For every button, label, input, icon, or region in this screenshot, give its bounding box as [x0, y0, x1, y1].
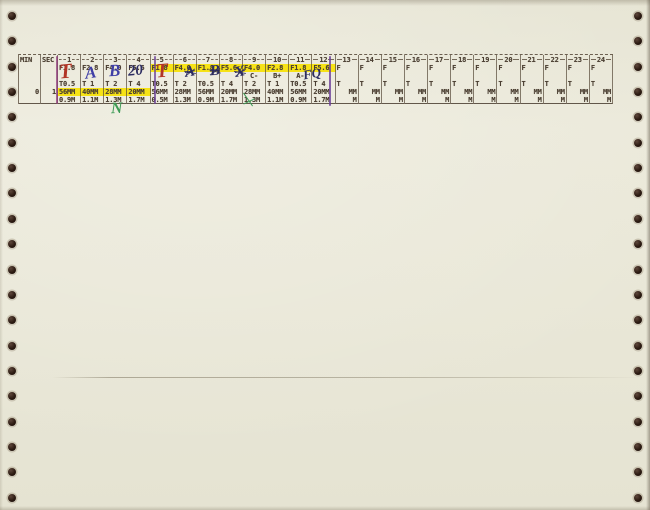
cell-m-2: 1.1M: [81, 96, 104, 104]
column-number: 20: [497, 55, 520, 64]
hw-letter-n: N: [111, 100, 123, 118]
min-blank-cell: [19, 72, 41, 80]
tractor-feed-hole: [634, 291, 642, 299]
tractor-feed-hole: [8, 291, 16, 299]
cell-time-20: T: [497, 80, 520, 88]
cell-mm-16: MM: [405, 88, 428, 96]
cell-m-4: 1.7M: [127, 96, 150, 104]
cell-fstop-19: F: [474, 64, 497, 72]
column-number: 14: [359, 55, 382, 64]
cell-grade-15: [382, 72, 405, 80]
tractor-feed-hole: [634, 164, 642, 172]
tractor-feed-hole: [8, 240, 16, 248]
min-blank-cell: [19, 64, 41, 72]
column-number: 21: [521, 55, 544, 64]
column-number-label: 6: [183, 56, 187, 64]
cell-mm-20: MM: [497, 88, 520, 96]
cell-grade-13: [336, 72, 359, 80]
cell-fstop-13: F: [336, 64, 359, 72]
column-number-label: 15: [389, 56, 397, 64]
tractor-feed-hole: [8, 113, 16, 121]
cell-fstop-16: F: [405, 64, 428, 72]
cell-m-13: M: [336, 96, 359, 104]
hw-grade-col5: T: [155, 60, 169, 84]
tractor-feed-hole: [634, 63, 642, 71]
cell-fstop-21: F: [521, 64, 544, 72]
min-blank-cell: [19, 80, 41, 88]
column-number-label: 23: [574, 56, 582, 64]
purple-marker-line-col12: [329, 56, 331, 106]
tractor-feed-hole: [634, 12, 642, 20]
hw-mark-col12: FQ: [302, 65, 323, 84]
paper-fold-crease: [52, 377, 644, 378]
tractor-feed-hole: [634, 189, 642, 197]
cell-time-10: T 1: [266, 80, 289, 88]
cell-fstop-14: F: [359, 64, 382, 72]
tractor-feed-hole: [634, 342, 642, 350]
cell-fstop-17: F: [428, 64, 451, 72]
cell-fstop-22: F: [544, 64, 567, 72]
tractor-feed-hole: [634, 418, 642, 426]
min-bottom-cell: [19, 96, 41, 104]
cell-time-18: T: [451, 80, 474, 88]
cell-m-24: M: [590, 96, 613, 104]
cell-mm-11: 56MM: [289, 88, 312, 96]
column-number: 16: [405, 55, 428, 64]
cell-m-22: M: [544, 96, 567, 104]
cell-mm-10: 40MM: [266, 88, 289, 96]
cell-time-9: T 2: [243, 80, 266, 88]
column-number-label: 12: [319, 56, 327, 64]
cell-fstop-9: F4.0: [243, 64, 266, 72]
tractor-feed-hole: [8, 215, 16, 223]
cell-time-16: T: [405, 80, 428, 88]
cell-mm-24: MM: [590, 88, 613, 96]
cell-mm-17: MM: [428, 88, 451, 96]
cell-m-18: M: [451, 96, 474, 104]
cell-time-6: T 2: [174, 80, 197, 88]
cell-time-21: T: [521, 80, 544, 88]
column-number: 23: [567, 55, 590, 64]
column-number-label: 7: [206, 56, 210, 64]
cell-mm-15: MM: [382, 88, 405, 96]
cell-grade-17: [428, 72, 451, 80]
min-value-cell: 0: [19, 88, 41, 96]
tractor-feed-hole: [8, 37, 16, 45]
cell-grade-18: [451, 72, 474, 80]
cell-m-23: M: [567, 96, 590, 104]
tractor-feed-hole: [634, 37, 642, 45]
column-number-label: 16: [412, 56, 420, 64]
column-number: 24: [590, 55, 613, 64]
cell-grade-21: [521, 72, 544, 80]
cell-time-17: T: [428, 80, 451, 88]
cell-fstop-18: F: [451, 64, 474, 72]
tractor-feed-hole: [8, 418, 16, 426]
tractor-feed-hole: [8, 164, 16, 172]
cell-mm-19: MM: [474, 88, 497, 96]
hw-scribble-col7: B: [209, 63, 220, 81]
cell-grade-24: [590, 72, 613, 80]
cell-m-19: M: [474, 96, 497, 104]
cell-m-7: 0.9M: [197, 96, 220, 104]
paper-left-edge: [0, 0, 3, 510]
cell-m-8: 1.7M: [220, 96, 243, 104]
column-number-label: 24: [597, 56, 605, 64]
paper-top-edge: [0, 0, 650, 6]
column-number: 8: [220, 55, 243, 64]
column-number-label: 17: [435, 56, 443, 64]
cell-m-17: M: [428, 96, 451, 104]
min-header: MIN: [19, 55, 41, 64]
column-number-label: 13: [343, 56, 351, 64]
cell-mm-7: 56MM: [197, 88, 220, 96]
cell-m-16: M: [405, 96, 428, 104]
hw-grade-col4: 20: [127, 62, 144, 80]
tractor-feed-hole: [634, 215, 642, 223]
column-number: 9: [243, 55, 266, 64]
cell-fstop-20: F: [497, 64, 520, 72]
tractor-feed-hole: [634, 139, 642, 147]
cell-m-14: M: [359, 96, 382, 104]
column-number: 11: [289, 55, 312, 64]
tractor-feed-hole: [634, 316, 642, 324]
tractor-feed-hole: [8, 266, 16, 274]
cell-mm-12: 20MM: [312, 88, 335, 96]
tractor-feed-hole: [8, 443, 16, 451]
cell-mm-14: MM: [359, 88, 382, 96]
cell-mm-6: 28MM: [174, 88, 197, 96]
column-number: 15: [382, 55, 405, 64]
tractor-feed-hole: [8, 316, 16, 324]
cell-m-6: 1.3M: [174, 96, 197, 104]
cell-time-4: T 4: [127, 80, 150, 88]
hw-grade-col3: B: [108, 61, 120, 82]
cell-time-7: T0.5: [197, 80, 220, 88]
cell-mm-9: 28MM: [243, 88, 266, 96]
cell-mm-3: 28MM: [104, 88, 127, 96]
cell-m-11: 0.9M: [289, 96, 312, 104]
column-number: 13: [336, 55, 359, 64]
cell-grade-20: [497, 72, 520, 80]
column-number-label: 11: [296, 56, 304, 64]
cell-mm-1: 56MM: [58, 88, 81, 96]
cell-m-15: M: [382, 96, 405, 104]
cell-fstop-15: F: [382, 64, 405, 72]
column-number-label: 21: [528, 56, 536, 64]
column-number-label: 10: [273, 56, 281, 64]
cell-m-12: 1.7M: [312, 96, 335, 104]
cell-time-22: T: [544, 80, 567, 88]
cell-time-3: T 2: [104, 80, 127, 88]
cell-grade-19: [474, 72, 497, 80]
column-number-label: 18: [458, 56, 466, 64]
cell-m-21: M: [521, 96, 544, 104]
column-number-label: 19: [481, 56, 489, 64]
tractor-feed-hole: [634, 113, 642, 121]
tractor-feed-hole: [634, 367, 642, 375]
cell-mm-4: 20MM: [127, 88, 150, 96]
column-number: 17: [428, 55, 451, 64]
cell-mm-22: MM: [544, 88, 567, 96]
cell-mm-2: 40MM: [81, 88, 104, 96]
column-number-label: 9: [252, 56, 256, 64]
cell-mm-18: MM: [451, 88, 474, 96]
tractor-feed-hole: [8, 494, 16, 502]
cell-grade-22: [544, 72, 567, 80]
tractor-feed-hole: [634, 494, 642, 502]
cell-mm-13: MM: [336, 88, 359, 96]
cell-grade-23: [567, 72, 590, 80]
cell-mm-8: 20MM: [220, 88, 243, 96]
tractor-feed-hole: [634, 240, 642, 248]
tractor-feed-hole: [634, 266, 642, 274]
tractor-feed-hole: [634, 88, 642, 96]
column-number-label: 14: [366, 56, 374, 64]
paper-right-edge: [646, 0, 650, 510]
column-number: 19: [474, 55, 497, 64]
tractor-feed-hole: [8, 63, 16, 71]
cell-time-14: T: [359, 80, 382, 88]
cell-mm-23: MM: [567, 88, 590, 96]
tractor-feed-hole: [8, 468, 16, 476]
cell-mm-21: MM: [521, 88, 544, 96]
scanned-printout-page: MINSEC1234567891011121314151617181920212…: [0, 0, 650, 510]
cell-m-20: M: [497, 96, 520, 104]
cell-fstop-24: F: [590, 64, 613, 72]
column-number: 10: [266, 55, 289, 64]
paper-bottom-edge: [0, 506, 650, 510]
column-number-label: 22: [551, 56, 559, 64]
column-number-label: 8: [229, 56, 233, 64]
cell-grade-10: B+: [266, 72, 289, 80]
tractor-feed-hole: [634, 392, 642, 400]
cell-m-10: 1.1M: [266, 96, 289, 104]
tractor-feed-hole: [634, 468, 642, 476]
hw-grade-col1: T: [58, 58, 73, 84]
column-number: 22: [544, 55, 567, 64]
tractor-feed-hole: [8, 392, 16, 400]
tractor-feed-hole: [8, 139, 16, 147]
tractor-feed-hole: [8, 189, 16, 197]
column-number: 18: [451, 55, 474, 64]
cell-m-1: 0.9M: [58, 96, 81, 104]
cell-fstop-23: F: [567, 64, 590, 72]
column-number-label: 20: [504, 56, 512, 64]
cell-fstop-10: F2.8: [266, 64, 289, 72]
tractor-feed-hole: [8, 367, 16, 375]
cell-grade-14: [359, 72, 382, 80]
cell-time-24: T: [590, 80, 613, 88]
cell-time-23: T: [567, 80, 590, 88]
cell-time-15: T: [382, 80, 405, 88]
cell-grade-16: [405, 72, 428, 80]
cell-time-19: T: [474, 80, 497, 88]
tractor-feed-hole: [8, 88, 16, 96]
tractor-feed-hole: [8, 12, 16, 20]
tractor-feed-hole: [8, 342, 16, 350]
tractor-feed-hole: [634, 443, 642, 451]
column-number: 12: [312, 55, 335, 64]
cell-time-13: T: [336, 80, 359, 88]
